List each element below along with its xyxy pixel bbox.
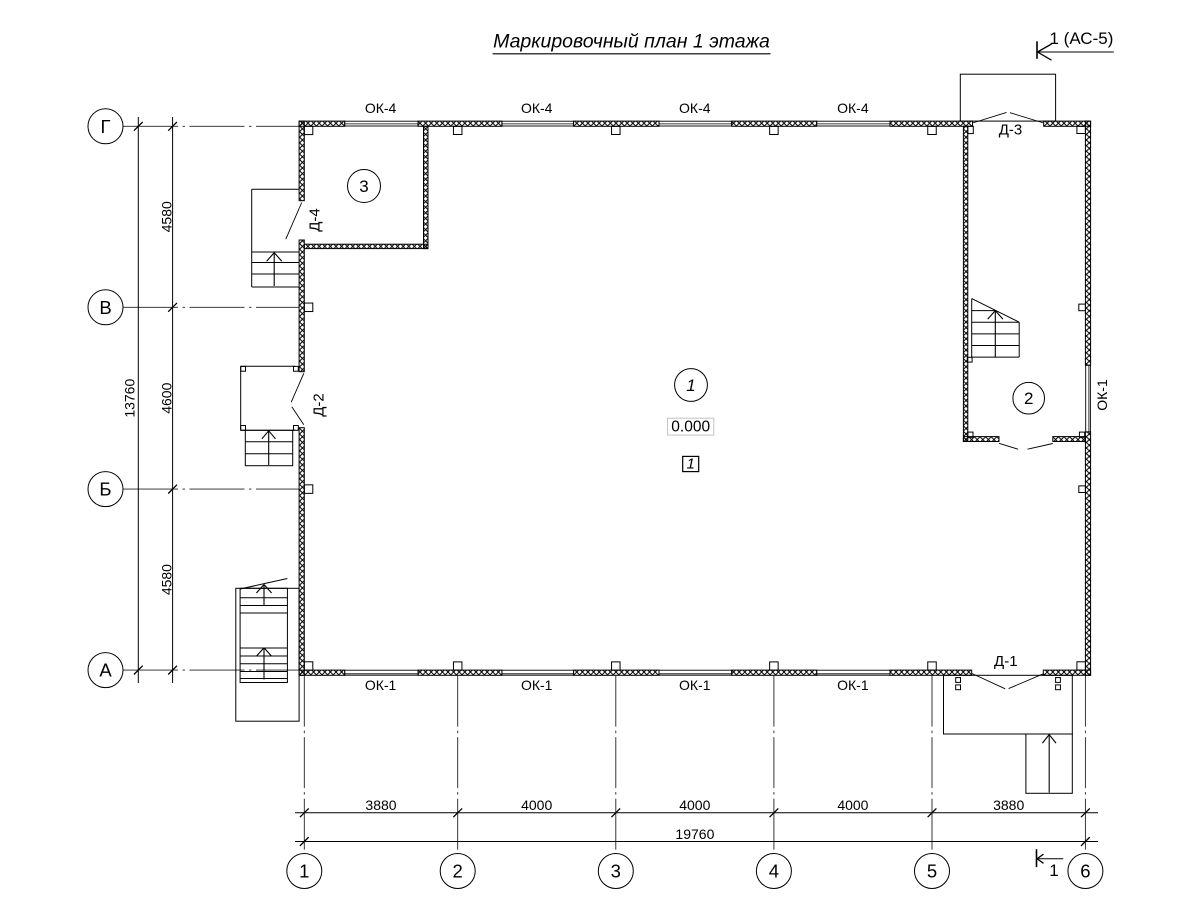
svg-text:ОК-1: ОК-1 (837, 677, 869, 693)
svg-text:5: 5 (927, 861, 937, 882)
svg-text:ОК-4: ОК-4 (521, 100, 553, 116)
svg-text:4580: 4580 (158, 201, 174, 232)
svg-text:3: 3 (359, 177, 368, 196)
svg-text:Г: Г (100, 116, 110, 137)
svg-text:4000: 4000 (837, 797, 868, 813)
svg-text:Д-3: Д-3 (999, 122, 1023, 139)
svg-text:ОК-1: ОК-1 (521, 677, 553, 693)
svg-text:1: 1 (1049, 861, 1058, 880)
svg-text:4580: 4580 (158, 564, 174, 595)
svg-text:4600: 4600 (158, 382, 174, 413)
svg-text:1 (АС-5): 1 (АС-5) (1050, 29, 1114, 48)
svg-text:Д-4: Д-4 (307, 208, 324, 232)
svg-text:13760: 13760 (122, 379, 138, 418)
svg-text:ОК-1: ОК-1 (1094, 379, 1110, 411)
svg-text:3: 3 (611, 861, 621, 882)
svg-text:ОК-1: ОК-1 (679, 677, 711, 693)
svg-text:А: А (99, 660, 112, 681)
svg-text:Б: Б (99, 479, 111, 500)
svg-text:2: 2 (453, 861, 463, 882)
svg-text:ОК-1: ОК-1 (365, 677, 397, 693)
svg-text:1: 1 (299, 861, 309, 882)
svg-text:1: 1 (686, 376, 695, 395)
svg-text:3880: 3880 (365, 797, 396, 813)
svg-text:1: 1 (687, 455, 695, 472)
svg-text:Д-2: Д-2 (311, 393, 328, 417)
svg-text:ОК-4: ОК-4 (365, 100, 397, 116)
svg-text:В: В (99, 297, 111, 318)
svg-text:Маркировочный план 1 этажа: Маркировочный план 1 этажа (493, 31, 770, 53)
svg-text:ОК-4: ОК-4 (837, 100, 869, 116)
svg-text:4000: 4000 (521, 797, 552, 813)
svg-text:ОК-4: ОК-4 (679, 100, 711, 116)
svg-text:19760: 19760 (675, 826, 714, 842)
svg-text:0.000: 0.000 (671, 419, 710, 436)
svg-text:4: 4 (769, 861, 779, 882)
svg-text:3880: 3880 (993, 797, 1024, 813)
svg-text:2: 2 (1024, 389, 1033, 408)
svg-text:6: 6 (1080, 861, 1090, 882)
svg-text:4000: 4000 (679, 797, 710, 813)
svg-text:Д-1: Д-1 (994, 653, 1018, 670)
